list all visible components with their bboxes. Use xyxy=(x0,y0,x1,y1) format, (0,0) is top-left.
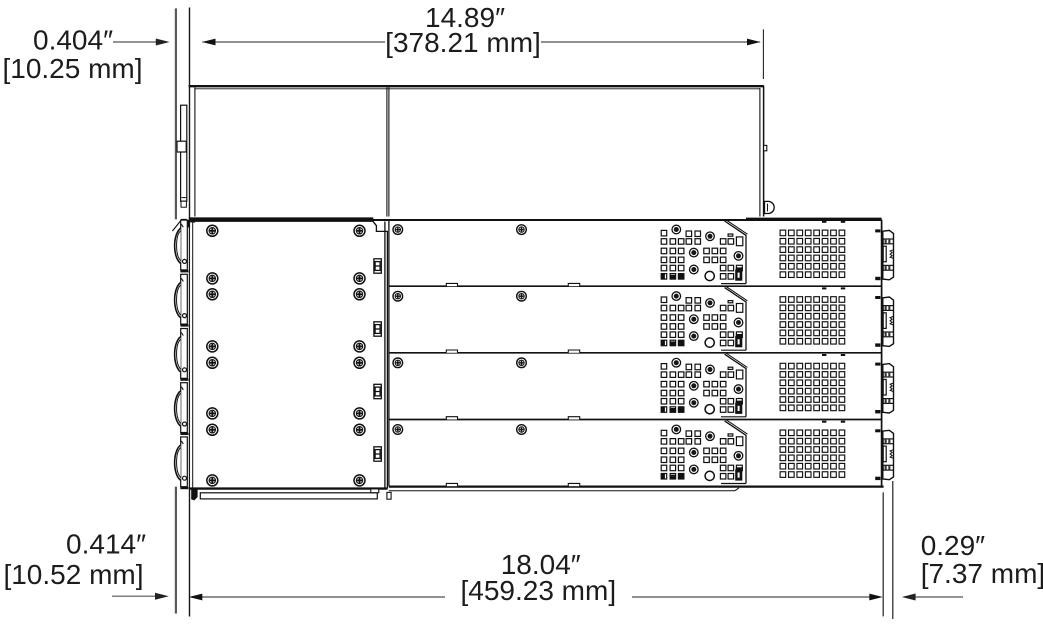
svg-text:0.414″: 0.414″ xyxy=(66,529,146,560)
svg-text:0.404″: 0.404″ xyxy=(33,24,113,55)
svg-text:[459.23 mm]: [459.23 mm] xyxy=(460,575,616,606)
svg-text:0.29″: 0.29″ xyxy=(921,530,985,561)
svg-text:[10.52 mm]: [10.52 mm] xyxy=(3,559,143,590)
svg-text:[378.21 mm]: [378.21 mm] xyxy=(385,27,541,58)
svg-text:[7.37 mm]: [7.37 mm] xyxy=(921,558,1043,589)
svg-text:[10.25 mm]: [10.25 mm] xyxy=(2,53,142,84)
